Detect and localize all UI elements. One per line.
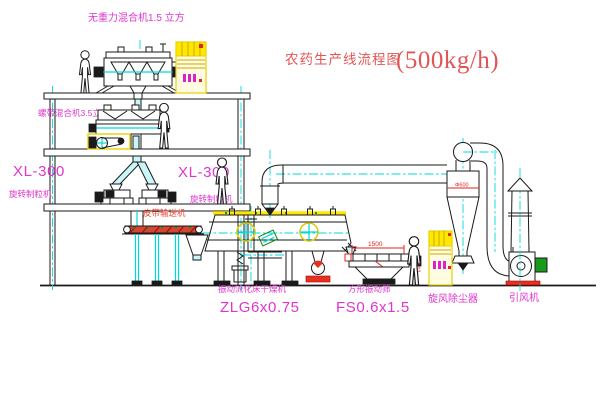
worker-figure-ground: [408, 237, 421, 285]
granulator-right: [139, 184, 176, 204]
dryer-feed-hopper: [186, 235, 208, 260]
cabinet1-indicator: [199, 44, 203, 48]
cyclone-label: 旋风除尘器: [428, 292, 478, 305]
control-cabinet-2: [429, 231, 452, 285]
ribbon-mixer: [88, 105, 169, 149]
fan-label: 引风机: [509, 291, 539, 304]
drawing-canvas: 农药生产线流程图 (500kg/h) 无重力混合机1.5 立方: [0, 0, 600, 403]
worker-figure-floor2: [158, 103, 170, 148]
cad-process-flow-drawing: 农药生产线流程图 (500kg/h) 无重力混合机1.5 立方: [0, 0, 600, 403]
sieve-length-dim: 1500: [368, 241, 383, 248]
gravity-mixer-label: 无重力混合机1.5 立方: [88, 11, 185, 24]
granulator-left-name-label: 旋转制粒机: [9, 189, 52, 199]
dryer-name-label: 振动流化床干燥机: [218, 284, 287, 294]
fluid-bed-dryer: [202, 206, 356, 285]
sieve-model-label: FS0.6x1.5: [336, 299, 410, 316]
control-cabinet-1: [176, 42, 206, 93]
drawing-title: 农药生产线流程图: [285, 52, 401, 67]
belt-conveyor-label: 皮带输送机: [143, 208, 186, 218]
y-chute: [112, 156, 156, 184]
drawing-title-capacity: (500kg/h): [396, 47, 499, 74]
cyclone-diameter-dim: Φ600: [455, 183, 469, 189]
induced-draft-fan: [506, 247, 547, 285]
worker-figure-roof: [79, 51, 90, 93]
sieve-name-label: 方形振动筛: [348, 284, 391, 294]
fan-motor: [535, 258, 547, 272]
exhaust-duct: [260, 150, 452, 218]
fan-base: [506, 281, 540, 285]
granulator-left-model-label: XL-300: [13, 163, 65, 180]
granulator-left: [95, 184, 133, 204]
gravity-free-mixer: [94, 40, 186, 112]
dryer-model-label: ZLG6x0.75: [220, 299, 300, 316]
